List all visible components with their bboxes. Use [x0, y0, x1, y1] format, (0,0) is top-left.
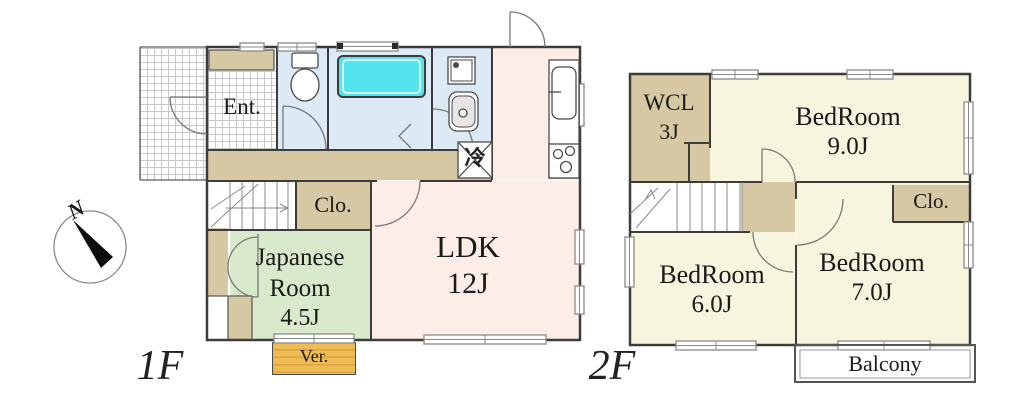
- veranda-label: Ver.: [274, 347, 354, 366]
- entrance-label: Ent.: [206, 95, 278, 119]
- floor2-label: 2F: [572, 344, 652, 388]
- bedroom-7-size: 7.0J: [792, 280, 952, 306]
- burner: [554, 150, 563, 159]
- ldk-size: 12J: [388, 268, 548, 300]
- bedroom-6-label: BedRoom: [632, 261, 792, 288]
- japanese-room-label-2: Room: [230, 276, 370, 302]
- bedroom-9-size: 9.0J: [768, 134, 928, 160]
- washing-machine: [448, 57, 475, 84]
- closet-1f-label: Clo.: [296, 193, 370, 216]
- floorplan-canvas: N Ent. Clo. Japanese Room 4.5J LDK 12J V…: [0, 0, 1024, 404]
- wcl-size: 3J: [631, 120, 707, 143]
- refrigerator-label: 冷: [458, 147, 492, 169]
- burner: [566, 147, 575, 156]
- bathtub: [338, 56, 425, 97]
- bedroom-6-size: 6.0J: [632, 292, 792, 318]
- balcony-label: Balcony: [797, 352, 973, 375]
- floor1-label: 1F: [120, 344, 200, 388]
- kitchen-sink: [552, 67, 576, 119]
- bedroom-7-label: BedRoom: [792, 249, 952, 276]
- bedroom-9-label: BedRoom: [768, 103, 928, 130]
- burner: [561, 162, 572, 173]
- wcl-label: WCL: [631, 91, 707, 115]
- f2-stairs: [630, 183, 740, 231]
- toilet-bowl: [291, 69, 319, 101]
- closet-2f-label: Clo.: [893, 190, 969, 212]
- japanese-room-label-1: Japanese: [230, 245, 370, 271]
- f1-stairs: [211, 182, 288, 229]
- f1-fixtures: [291, 53, 579, 178]
- ldk-label: LDK: [388, 231, 548, 264]
- toilet-tank: [292, 53, 318, 68]
- japanese-room-size: 4.5J: [230, 306, 370, 331]
